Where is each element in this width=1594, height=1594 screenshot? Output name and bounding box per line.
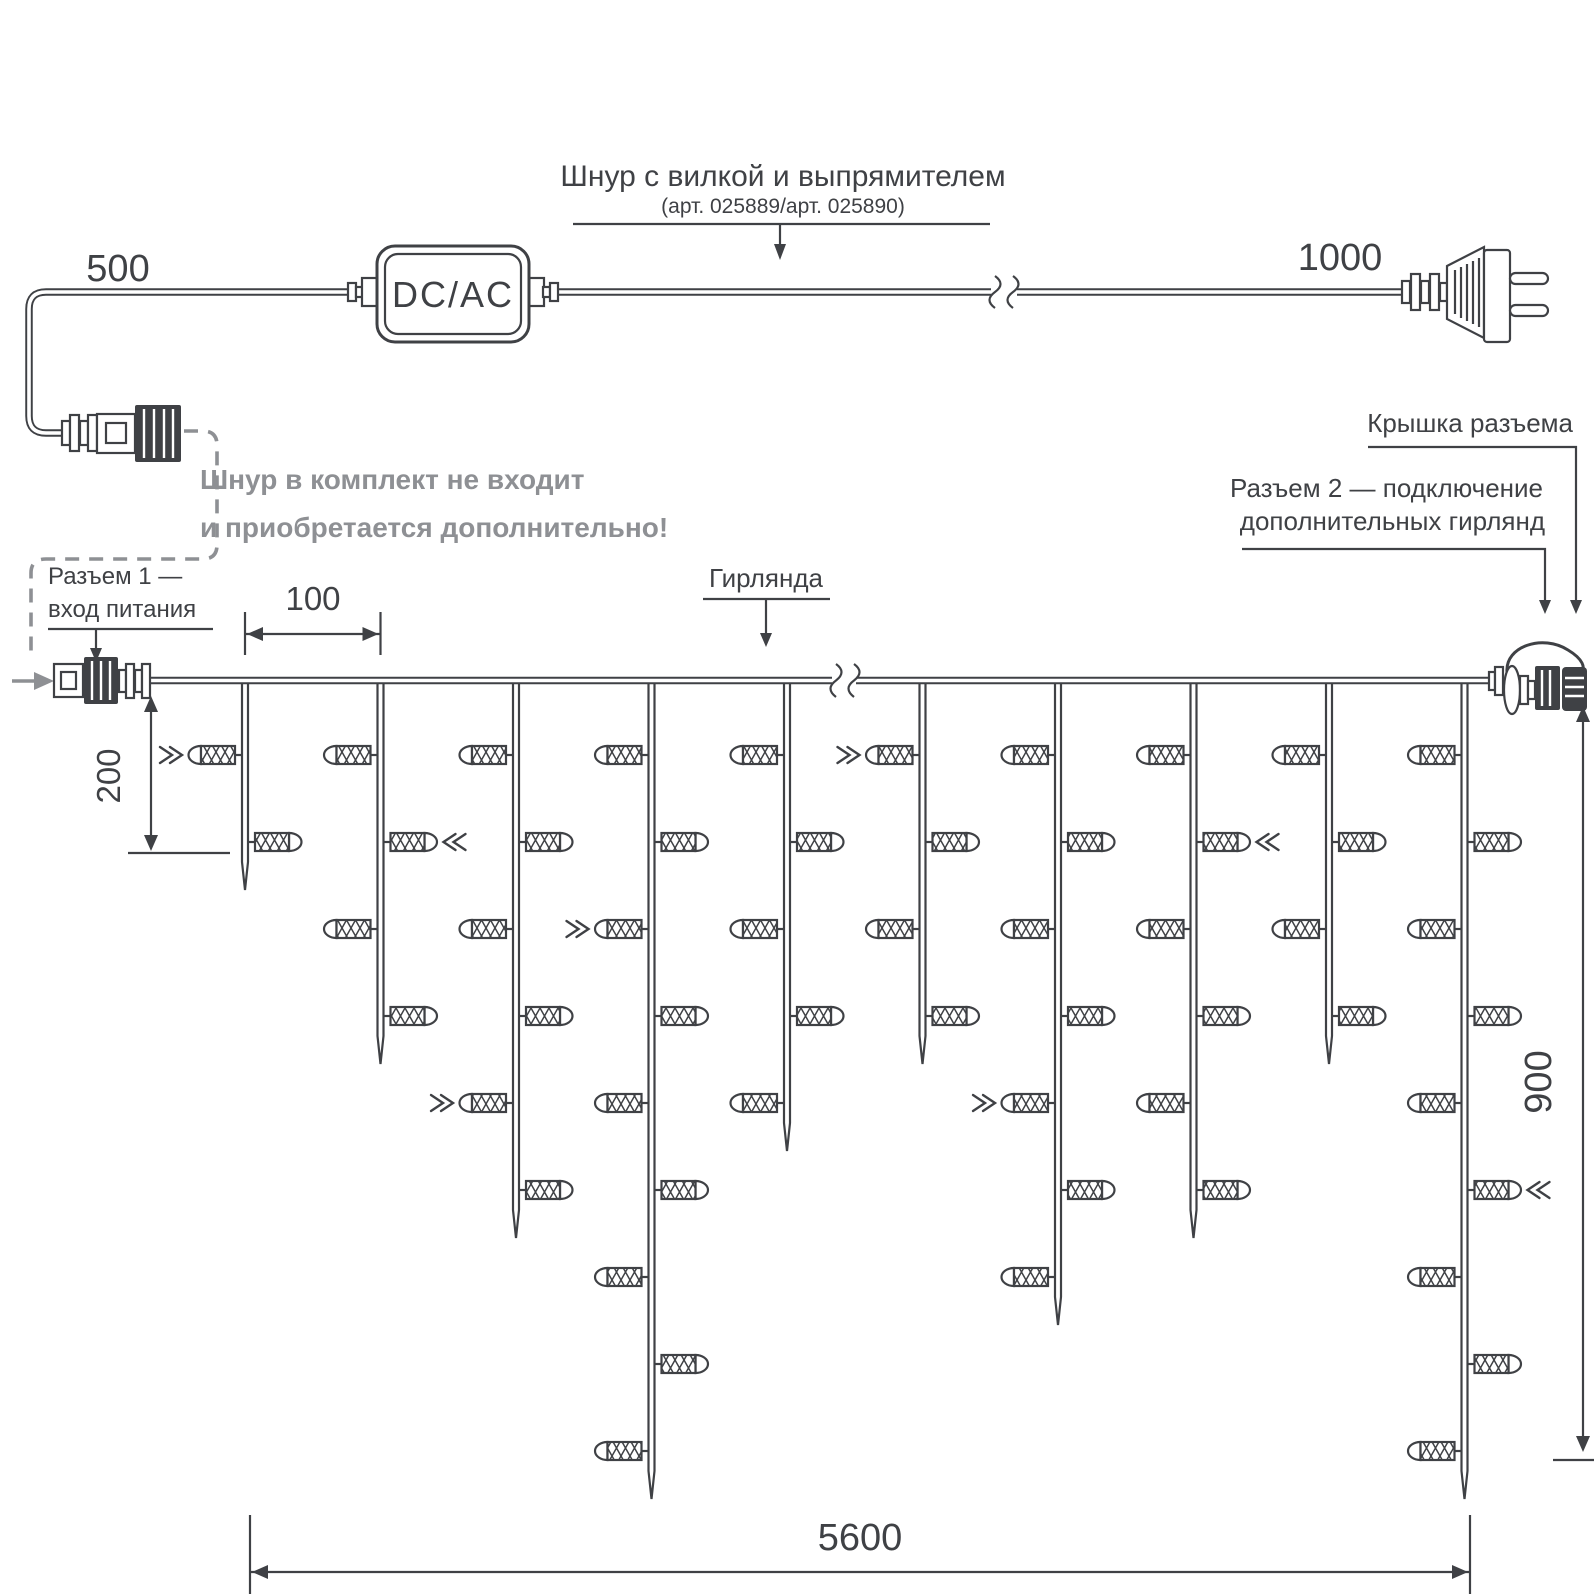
connector1-line1: Разъем 1 — — [48, 563, 182, 590]
led-bulb — [324, 920, 379, 938]
led-bulb — [925, 833, 980, 851]
led-bulb — [1408, 746, 1463, 764]
garland-drop — [1408, 684, 1521, 1499]
not-included-note: Шнур в комплект не входит и приобретаетс… — [200, 464, 668, 543]
connector1-label: Разъем 1 — вход питания — [48, 563, 213, 662]
connector2-line2: дополнительных гирлянд — [1240, 506, 1545, 536]
down-arrow-icon — [774, 244, 786, 260]
led-bulb — [731, 1094, 786, 1112]
led-bulb — [1408, 1094, 1463, 1112]
light-direction-arrow-icon — [431, 1095, 453, 1111]
garland-drop — [595, 684, 708, 1499]
led-bulb — [518, 1007, 573, 1025]
led-bulb — [595, 1442, 650, 1460]
led-bulb — [789, 833, 843, 851]
cord-title: Шнур с вилкой и выпрямителем — [560, 160, 1005, 193]
led-bulb — [1060, 1181, 1115, 1199]
garland-drop — [866, 684, 979, 1064]
garland-drop — [731, 684, 844, 1151]
led-bulb — [1137, 920, 1192, 938]
input-connector-icon — [54, 657, 150, 704]
garland-label: Гирлянда — [703, 563, 830, 647]
led-bulb — [459, 1094, 514, 1112]
garland-leader-line — [703, 599, 830, 633]
connector-cap-icon — [1562, 667, 1587, 711]
led-bulb — [1060, 833, 1115, 851]
wire-break-icon — [831, 664, 860, 697]
led-bulb — [1196, 1181, 1251, 1199]
cap-label-text: Крышка разъема — [1367, 408, 1573, 438]
light-direction-arrow-icon — [444, 834, 466, 850]
dim-900-label: 900 — [1518, 1050, 1560, 1113]
cord-subtitle: (арт. 025889/арт. 025890) — [661, 195, 905, 218]
down-arrow-icon — [760, 633, 772, 647]
dimension-5600: 5600 — [250, 1515, 1470, 1594]
led-bulb — [595, 1268, 650, 1286]
note-line-1: Шнур в комплект не входит — [200, 464, 584, 495]
led-bulb — [789, 1007, 843, 1025]
led-bulb — [1331, 833, 1386, 851]
light-direction-arrow-icon — [160, 747, 182, 763]
led-bulb — [459, 746, 514, 764]
light-direction-arrow-icon — [1528, 1182, 1550, 1198]
led-bulb — [189, 746, 244, 764]
led-bulb — [1196, 833, 1251, 851]
light-direction-arrow-icon — [973, 1095, 995, 1111]
cord-length-right-label: 1000 — [1298, 237, 1383, 279]
led-bulb — [1196, 1007, 1251, 1025]
led-bulb — [518, 833, 573, 851]
led-bulb — [1467, 1007, 1522, 1025]
led-bulb — [1273, 746, 1328, 764]
garland-drops — [160, 684, 1550, 1499]
power-cord-wire — [29, 292, 1404, 433]
garland-drop — [324, 684, 437, 1064]
led-bulb — [383, 1007, 438, 1025]
connector2-leader-line — [1242, 549, 1545, 600]
cable-break-icon — [990, 276, 1019, 308]
led-bulb — [654, 833, 709, 851]
dim-5600-label: 5600 — [818, 1517, 903, 1559]
dimension-200: 200 — [90, 696, 230, 853]
garland-drop — [459, 684, 572, 1238]
converter-label: DC/AC — [392, 274, 514, 315]
led-bulb — [925, 1007, 980, 1025]
led-bulb — [247, 833, 302, 851]
power-cord-assembly: Шнур с вилкой и выпрямителем (арт. 02588… — [29, 160, 1548, 462]
dim-200-label: 200 — [90, 748, 127, 803]
led-bulb — [1408, 1442, 1463, 1460]
optional-cord-path — [12, 431, 217, 690]
led-bulb — [654, 1181, 709, 1199]
led-bulb — [1408, 1268, 1463, 1286]
cord-connector-icon — [62, 405, 181, 462]
garland — [54, 643, 1587, 1499]
garland-drop — [1273, 684, 1386, 1064]
led-bulb — [383, 833, 438, 851]
led-bulb — [1001, 1268, 1056, 1286]
output-connector-icon — [1489, 643, 1587, 714]
led-bulb — [654, 1355, 709, 1373]
led-bulb — [654, 1007, 709, 1025]
led-bulb — [1467, 1181, 1522, 1199]
garland-drop — [189, 684, 302, 890]
dimension-100: 100 — [245, 580, 381, 655]
connector2-line1: Разъем 2 — подключение — [1230, 473, 1543, 503]
led-bulb — [518, 1181, 573, 1199]
led-bulb — [731, 746, 786, 764]
garland-drop — [1137, 684, 1250, 1238]
garland-drop — [1001, 684, 1114, 1325]
input-arrow-icon — [34, 672, 54, 690]
dc-ac-converter-box: DC/AC — [348, 246, 558, 342]
connector1-leader-line — [48, 629, 213, 648]
light-direction-arrow-icon — [1257, 834, 1279, 850]
connector2-label: Разъем 2 — подключение дополнительных ги… — [1230, 473, 1551, 614]
led-bulb — [731, 920, 786, 938]
wiring-diagram-canvas: Шнур с вилкой и выпрямителем (арт. 02588… — [0, 0, 1594, 1594]
down-arrow-icon — [1539, 600, 1551, 614]
led-bulb — [866, 920, 921, 938]
led-bulb — [1467, 833, 1522, 851]
led-bulb — [1001, 920, 1056, 938]
down-arrow-icon — [1570, 600, 1582, 614]
power-plug-icon — [1402, 247, 1548, 342]
note-line-2: и приобретается дополнительно! — [200, 512, 668, 543]
led-bulb — [1408, 920, 1463, 938]
dimension-900: 900 — [1518, 706, 1594, 1460]
led-bulb — [1273, 920, 1328, 938]
led-bulb — [459, 920, 514, 938]
led-bulb — [1137, 1094, 1192, 1112]
cord-length-left-label: 500 — [86, 248, 149, 290]
led-bulb — [1001, 1094, 1056, 1112]
led-bulb — [866, 746, 921, 764]
led-bulb — [1060, 1007, 1115, 1025]
led-bulb — [595, 1094, 650, 1112]
dim-100-label: 100 — [285, 580, 340, 617]
light-direction-arrow-icon — [838, 747, 860, 763]
icicle-garland-diagram: Шнур с вилкой и выпрямителем (арт. 02588… — [0, 0, 1594, 1594]
light-direction-arrow-icon — [567, 921, 589, 937]
led-bulb — [595, 920, 650, 938]
led-bulb — [1331, 1007, 1386, 1025]
led-bulb — [1137, 746, 1192, 764]
led-bulb — [324, 746, 379, 764]
led-bulb — [595, 746, 650, 764]
garland-label-text: Гирлянда — [709, 563, 823, 593]
led-bulb — [1467, 1355, 1522, 1373]
led-bulb — [1001, 746, 1056, 764]
connector1-line2: вход питания — [48, 596, 196, 623]
